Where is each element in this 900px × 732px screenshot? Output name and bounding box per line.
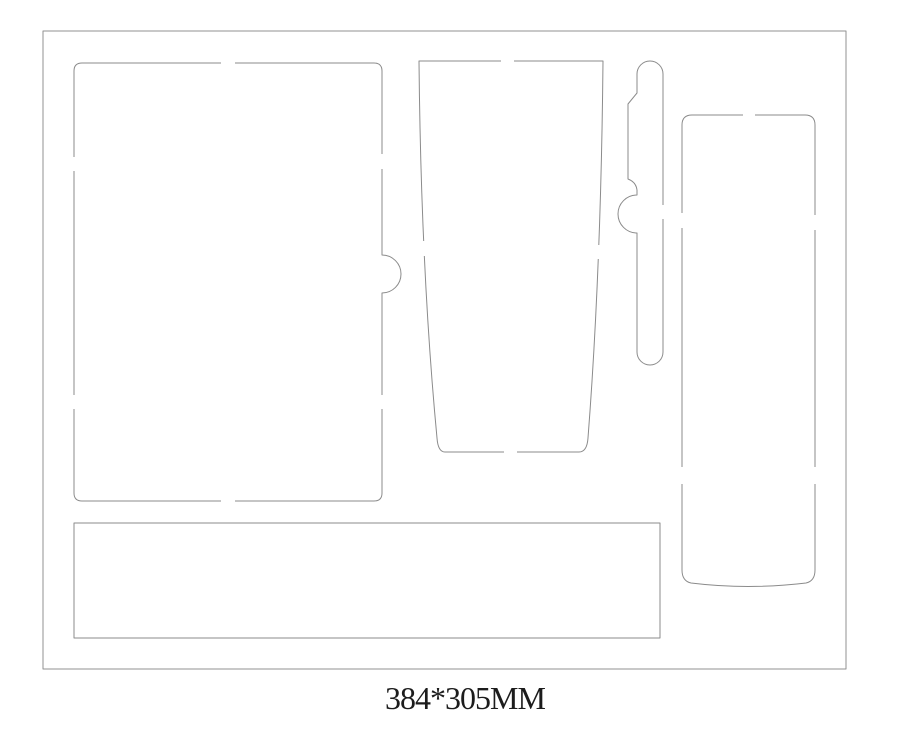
- bridge-gap-tumbler-slot: [501, 56, 514, 66]
- bridge-gap-notebook-slot: [69, 395, 79, 409]
- outer-board-edge: [43, 31, 846, 669]
- bridge-gap-tumbler-slot: [504, 447, 517, 457]
- tumbler-slot: [419, 61, 603, 452]
- notebook-slot: [74, 63, 401, 501]
- dimension-label: 384*305MM: [385, 680, 545, 716]
- drawing-svg: 384*305MM: [0, 0, 900, 732]
- bridge-gap-notebook-slot: [221, 58, 235, 68]
- bridge-gaps-layer: [69, 56, 820, 506]
- diecut-drawing: 384*305MM: [0, 0, 900, 732]
- bridge-gap-notebook-slot: [377, 395, 387, 409]
- pen-slot: [618, 61, 663, 365]
- bridge-gap-notebook-slot: [377, 154, 387, 169]
- bridge-gap-tumbler-slot: [593, 245, 605, 259]
- bridge-gap-tall-slot: [743, 110, 755, 120]
- bridge-gap-pen-slot: [658, 205, 668, 219]
- bridge-gap-tall-slot: [677, 213, 687, 228]
- bridge-gap-notebook-slot: [69, 157, 79, 171]
- bridge-gap-tall-slot: [810, 467, 820, 484]
- cut-lines-layer: [43, 31, 846, 669]
- bridge-gap-tumbler-slot: [416, 241, 428, 256]
- bridge-gap-tall-slot: [810, 215, 820, 230]
- bridge-gap-notebook-slot: [221, 496, 235, 506]
- bridge-gap-tall-slot: [677, 467, 687, 484]
- bottom-slot: [74, 523, 660, 638]
- tall-slot: [682, 115, 815, 587]
